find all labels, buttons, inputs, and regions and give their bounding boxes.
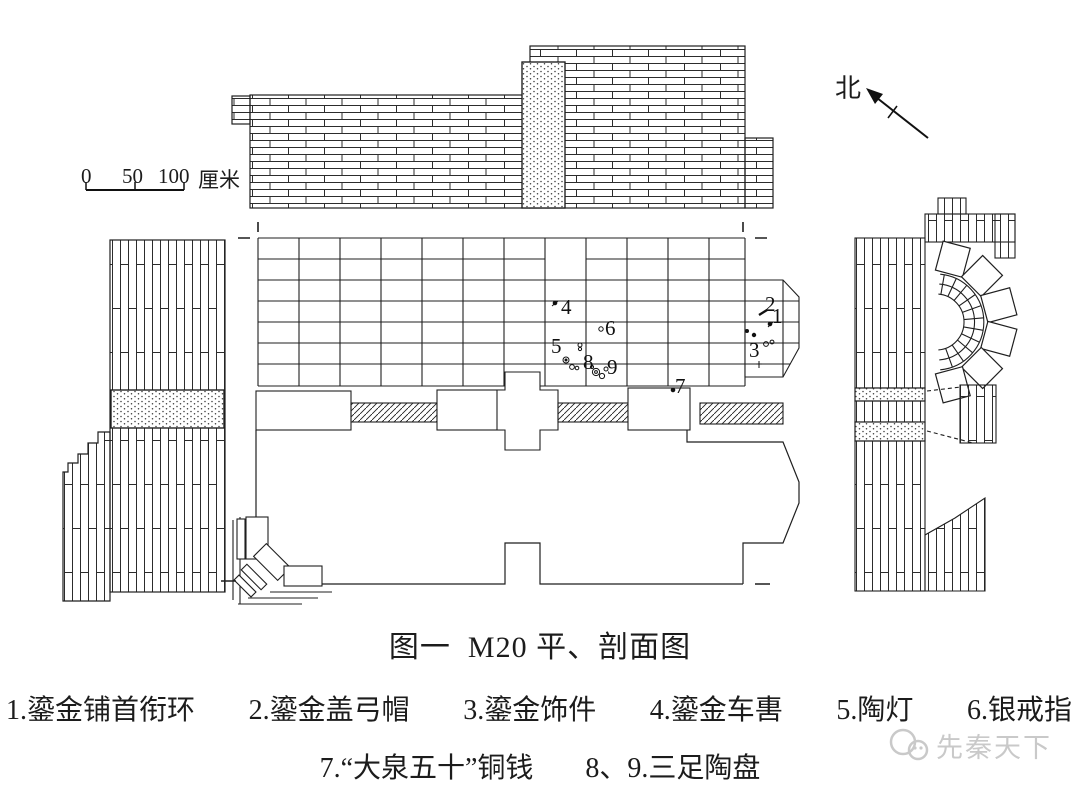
- watermark-logo-icon: [886, 724, 932, 766]
- plan-view: [221, 222, 799, 604]
- legend-item-3: 3.鎏金饰件: [463, 688, 596, 728]
- watermark: 先秦天下: [886, 724, 1052, 766]
- legend-item-2: 2.鎏金盖弓帽: [249, 688, 410, 728]
- east-wall-section: [855, 198, 1017, 591]
- legend-item-1: 1.鎏金铺首衔环: [6, 688, 195, 728]
- north-arrow: [866, 88, 928, 138]
- findspot-number-4: 4: [561, 297, 572, 318]
- findspot-number-9: 9: [607, 357, 618, 378]
- findspot-number-2: 2: [765, 294, 776, 315]
- top-wall-section: [232, 46, 773, 208]
- legend-item-7: 7.“大泉五十”铜钱: [320, 746, 534, 786]
- legend-item-8-9: 8、9.三足陶盘: [585, 746, 760, 786]
- arch-voussoirs: [935, 241, 1016, 403]
- chamber-outline: [256, 430, 799, 584]
- scale-tick-0: 0: [81, 164, 92, 189]
- floor-grid: [258, 238, 745, 386]
- north-label: 北: [835, 68, 861, 105]
- watermark-text: 先秦天下: [936, 726, 1052, 765]
- legend-item-5: 5.陶灯: [836, 688, 913, 728]
- figure-legend-row1: 1.鎏金铺首衔环 2.鎏金盖弓帽 3.鎏金饰件 4.鎏金车軎 5.陶灯 6.银戒…: [6, 688, 1072, 728]
- findspot-number-3: 3: [749, 340, 760, 361]
- scale-unit: 厘米: [198, 164, 240, 194]
- legend-item-4: 4.鎏金车軎: [650, 688, 783, 728]
- findspot-symbols: [552, 301, 774, 392]
- legend-item-6: 6.银戒指: [967, 688, 1072, 728]
- corner-brick-detail: [233, 517, 332, 604]
- scale-tick-100: 100: [158, 164, 190, 189]
- findspot-number-8: 8: [583, 352, 594, 373]
- findspot-number-5: 5: [551, 336, 562, 357]
- cross-pillar: [497, 372, 558, 450]
- west-wall-section: [63, 240, 225, 601]
- findspot-number-6: 6: [605, 318, 616, 339]
- findspot-number-7: 7: [675, 376, 686, 397]
- tomb-plan-figure: 北 0 50 100 厘米 1 2 3 4 5 6 7 8 9 图一 M20 平…: [0, 0, 1080, 794]
- figure-title: 图一 M20 平、剖面图: [0, 622, 1080, 666]
- south-wall-band: [256, 372, 783, 450]
- plan-section-drawing: [0, 0, 1080, 620]
- scale-tick-50: 50: [122, 164, 143, 189]
